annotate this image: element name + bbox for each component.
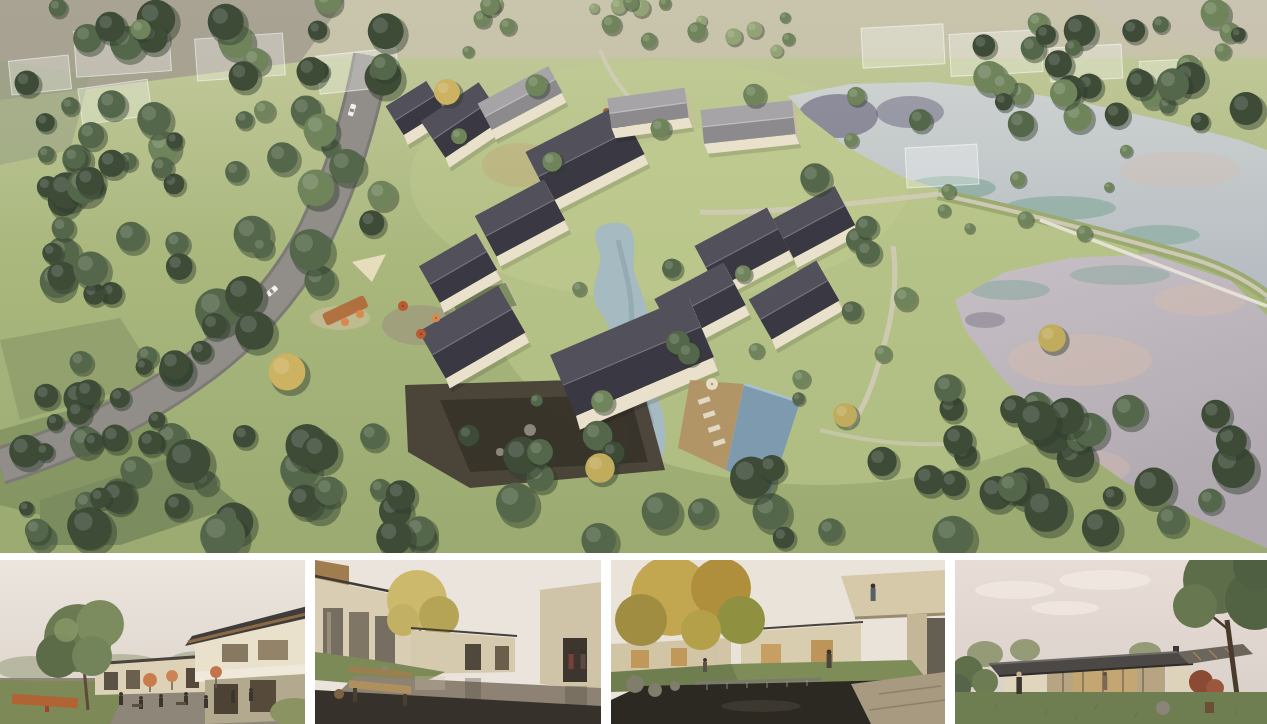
balcony-figure bbox=[871, 584, 876, 601]
rendering-board bbox=[0, 0, 1267, 724]
mid-buildings bbox=[411, 628, 517, 674]
plaza-cafe-rendering bbox=[0, 560, 305, 724]
umbrella bbox=[432, 314, 440, 322]
garden-pond-terrace-rendering bbox=[611, 560, 945, 724]
umbrella bbox=[416, 329, 426, 339]
interior-figure bbox=[1103, 672, 1108, 690]
person bbox=[1016, 671, 1022, 694]
aerial-masterplan-rendering bbox=[0, 0, 1267, 553]
right-building bbox=[540, 582, 601, 690]
pavilion bbox=[701, 100, 802, 157]
glass-pavilion-lawn-rendering bbox=[955, 560, 1267, 724]
rock bbox=[1156, 701, 1170, 715]
umbrella bbox=[706, 378, 718, 390]
thumbnail-strip bbox=[0, 560, 1267, 724]
lawn bbox=[955, 692, 1267, 724]
umbrella bbox=[398, 301, 408, 311]
reflecting-pool-courtyard-rendering bbox=[315, 560, 601, 724]
tree-stump bbox=[1205, 702, 1214, 713]
ghost-building bbox=[905, 144, 979, 188]
ghost-building bbox=[861, 24, 945, 68]
